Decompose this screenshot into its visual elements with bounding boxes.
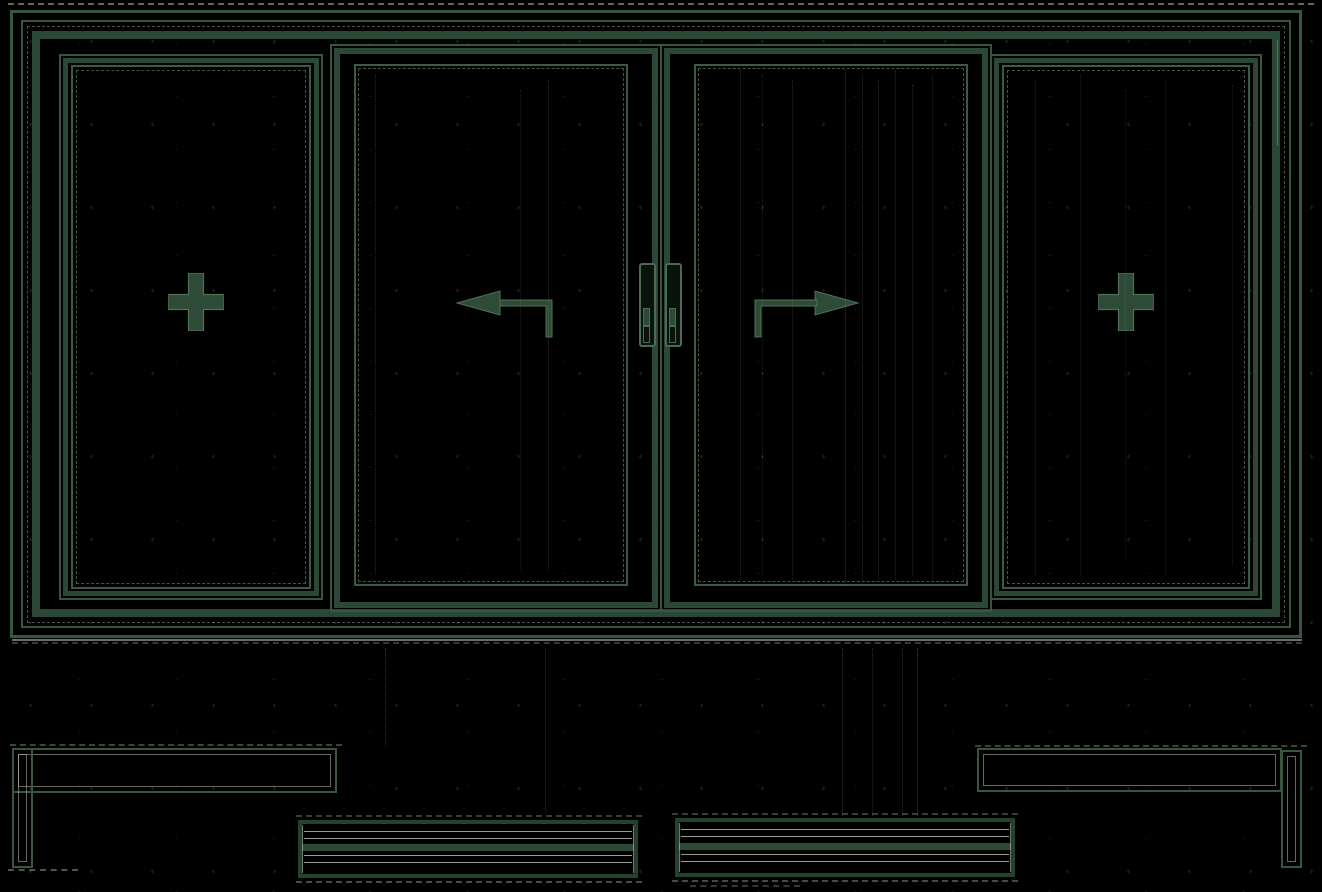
noise-dash-line — [672, 813, 1018, 815]
track-line — [681, 829, 1009, 830]
noise-dots-column — [845, 70, 846, 585]
profile-inner-line — [1287, 756, 1296, 862]
track-section-right — [675, 818, 1015, 877]
noise-dots-column — [545, 648, 546, 813]
track-line — [304, 831, 632, 832]
noise-line — [1277, 40, 1278, 145]
noise-dots-column — [548, 80, 549, 570]
sash-handle-right — [665, 263, 682, 347]
noise-line — [12, 639, 1302, 641]
track-line — [681, 854, 1009, 855]
track-section-left — [298, 820, 638, 878]
noise-dots-column — [902, 648, 903, 816]
track-end-line — [302, 825, 303, 873]
noise-dots-column — [912, 85, 913, 575]
track-line — [681, 836, 1009, 837]
section-profile-right-horizontal — [977, 748, 1282, 792]
noise-dash-line — [296, 815, 642, 817]
noise-dash-line — [672, 880, 1018, 882]
panel-slider-right — [660, 44, 992, 612]
plus-icon — [168, 273, 224, 331]
noise-dots-column — [762, 75, 763, 575]
profile-inner-line — [18, 754, 27, 862]
panel-slider-left — [330, 44, 662, 612]
track-end-line — [633, 825, 634, 873]
section-profile-left-horizontal — [12, 748, 337, 793]
sash-handle-left — [639, 263, 656, 347]
track-line — [304, 862, 632, 863]
cad-drawing-canvas — [0, 0, 1322, 892]
noise-dots-column — [932, 75, 933, 580]
handle-thumbturn — [669, 308, 676, 326]
noise-dots-column — [1232, 85, 1233, 565]
noise-dots-column — [375, 75, 376, 575]
noise-dash-line — [690, 885, 800, 887]
noise-dots-column — [1080, 75, 1081, 575]
panel-fixed-right — [990, 54, 1262, 600]
noise-dots-column — [520, 90, 521, 570]
noise-dots-column — [385, 648, 386, 746]
track-line — [304, 855, 632, 856]
noise-dots-column — [1165, 80, 1166, 575]
noise-dash-line — [975, 745, 1307, 747]
track-band — [302, 844, 634, 851]
plus-icon — [1098, 273, 1154, 331]
noise-dots-column — [878, 80, 879, 580]
noise-dash-line — [12, 642, 1302, 644]
noise-dash-line — [8, 869, 78, 871]
panel-fixed-left — [59, 54, 323, 600]
track-line — [681, 861, 1009, 862]
noise-dots-column — [792, 80, 793, 580]
arrow-left-icon — [455, 288, 560, 343]
track-end-line — [1010, 823, 1011, 872]
noise-dots-column — [842, 648, 843, 816]
noise-dots-column — [862, 75, 863, 580]
noise-dots-column — [895, 70, 896, 580]
noise-dash-line — [10, 744, 342, 746]
handle-grip — [643, 326, 650, 343]
track-band — [679, 843, 1011, 850]
noise-dash-line — [296, 881, 642, 883]
section-profile-right-vertical — [1281, 750, 1302, 868]
track-line — [304, 838, 632, 839]
profile-inner-line — [983, 754, 1276, 786]
track-end-line — [679, 823, 680, 872]
handle-grip — [669, 326, 676, 343]
noise-dots-column — [917, 648, 918, 816]
handle-thumbturn — [643, 308, 650, 326]
section-profile-left-vertical — [12, 748, 33, 868]
noise-dots-column — [1035, 80, 1036, 575]
noise-dash-line — [8, 3, 1314, 5]
profile-inner-line — [18, 754, 331, 787]
noise-dots-column — [872, 648, 873, 816]
noise-dots-column — [1125, 90, 1126, 560]
noise-dots-column — [740, 70, 741, 580]
